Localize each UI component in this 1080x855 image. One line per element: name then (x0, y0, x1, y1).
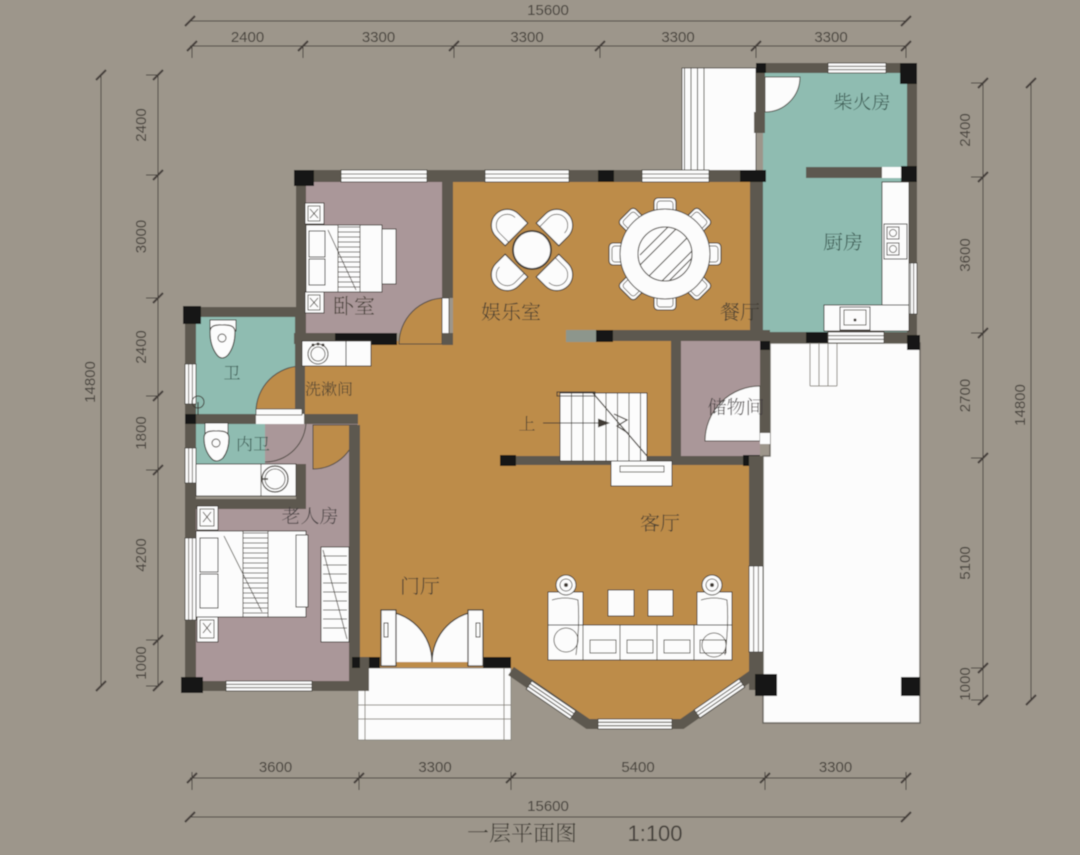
svg-text:3000: 3000 (133, 220, 150, 253)
svg-text:1000: 1000 (133, 646, 150, 679)
svg-text:14800: 14800 (1012, 384, 1029, 426)
svg-text:3300: 3300 (362, 29, 395, 46)
svg-text:1:100: 1:100 (627, 821, 682, 846)
svg-text:3300: 3300 (661, 29, 694, 46)
svg-text:2400: 2400 (231, 29, 264, 46)
svg-text:3300: 3300 (418, 759, 451, 776)
svg-text:15600: 15600 (527, 798, 569, 815)
svg-text:4200: 4200 (133, 538, 150, 571)
svg-text:5400: 5400 (621, 759, 654, 776)
svg-text:3300: 3300 (819, 759, 852, 776)
svg-text:5100: 5100 (957, 546, 974, 579)
svg-text:2700: 2700 (957, 379, 974, 412)
svg-text:3300: 3300 (814, 29, 847, 46)
svg-text:2400: 2400 (133, 330, 150, 363)
svg-text:2400: 2400 (957, 113, 974, 146)
svg-text:2400: 2400 (133, 108, 150, 141)
svg-text:3600: 3600 (957, 238, 974, 271)
svg-text:3600: 3600 (259, 759, 292, 776)
svg-text:1800: 1800 (133, 416, 150, 449)
svg-text:3300: 3300 (510, 29, 543, 46)
svg-text:15600: 15600 (527, 2, 569, 19)
svg-text:1000: 1000 (957, 667, 974, 700)
svg-text:14800: 14800 (82, 361, 99, 403)
